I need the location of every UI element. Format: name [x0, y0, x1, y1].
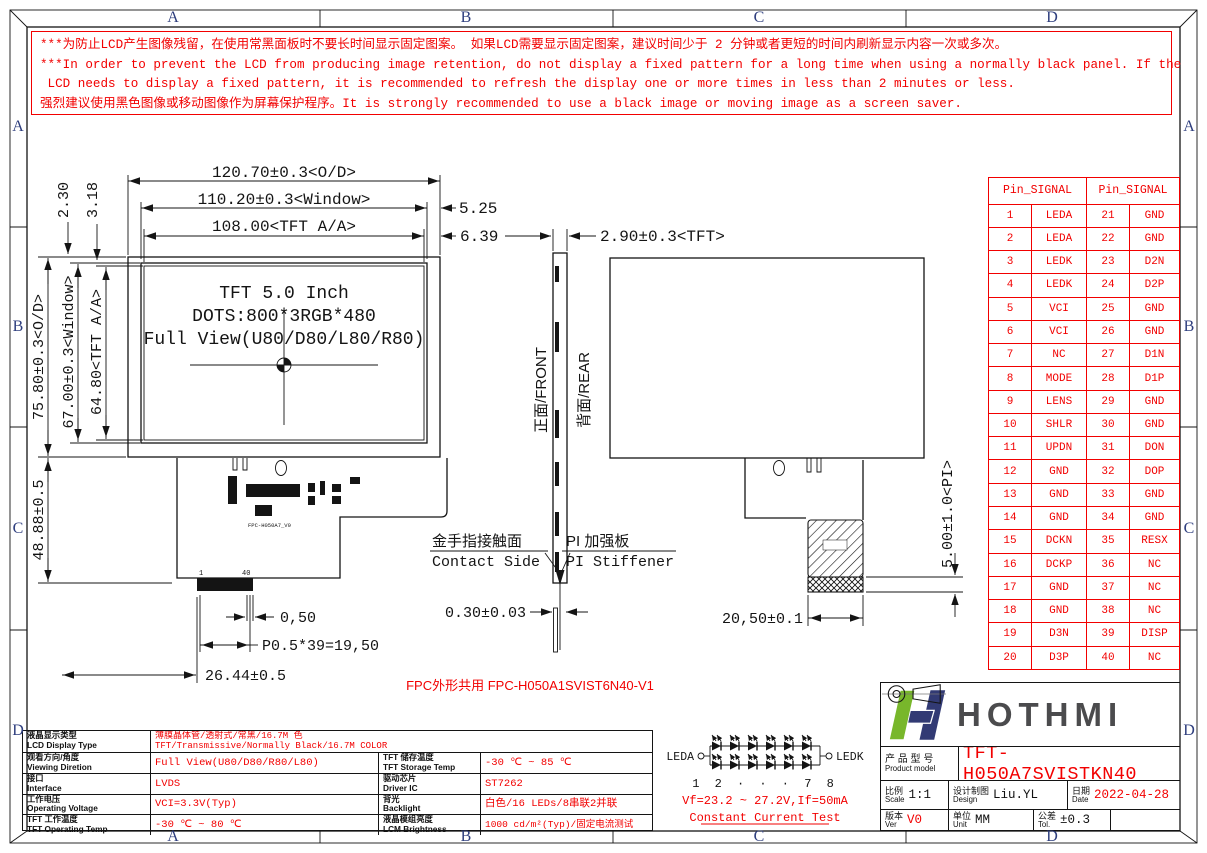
- pin-cell: 35: [1087, 530, 1130, 552]
- dim-aa-right: 6.39: [460, 228, 498, 246]
- pin-cell: 5: [989, 298, 1032, 320]
- pin-cell: SHLR: [1032, 414, 1087, 436]
- pin-cell: NC: [1130, 577, 1179, 599]
- stiffener-label-cn: PI 加强板: [566, 532, 629, 550]
- spec-value: TFT/Transmissive/Normally Black/16.7M CO…: [155, 741, 648, 751]
- fpc-part-label: FPC-H050A7_V0: [248, 522, 291, 529]
- dim-pi-height: 5.00±1.0<PI>: [940, 460, 957, 568]
- zone-letter: C: [1184, 520, 1195, 538]
- pin-table-row: 20D3P40NC: [989, 647, 1179, 669]
- zone-letter: B: [461, 828, 472, 846]
- pin-cell: DCKN: [1032, 530, 1087, 552]
- spec-label-en: Viewing Diretion: [27, 763, 146, 773]
- spec-label-en: TFT Storage Temp: [383, 763, 476, 773]
- pin-cell: D3N: [1032, 623, 1087, 645]
- zone-letter: B: [461, 9, 472, 27]
- warning-line: LCD needs to display a fixed pattern, it…: [40, 75, 1163, 95]
- spec-value: VCI=3.3V(Typ): [151, 795, 379, 815]
- pin-cell: 31: [1087, 437, 1130, 459]
- zone-letter: A: [167, 9, 179, 27]
- spec-label-en: Interface: [27, 784, 146, 794]
- pin-cell: LENS: [1032, 391, 1087, 413]
- unit-value: MM: [975, 813, 990, 827]
- pin-cell: 30: [1087, 414, 1130, 436]
- pin-cell: D3P: [1032, 647, 1087, 669]
- ver-label-en: Ver: [885, 821, 903, 830]
- version-value: V0: [907, 813, 922, 827]
- gold-finger-connector: [197, 578, 253, 591]
- pin-cell: 3: [989, 251, 1032, 273]
- pin-cell: 14: [989, 507, 1032, 529]
- side-front-label: 正面/FRONT: [533, 347, 550, 433]
- dim-pitch-total: P0.5*39=19,50: [262, 638, 379, 655]
- pin-cell: 32: [1087, 460, 1130, 482]
- dim-stiffener-width: 20,50±0.1: [722, 611, 803, 628]
- pin-cell: DCKP: [1032, 554, 1087, 576]
- pin-table-row: 10SHLR30GND: [989, 414, 1179, 437]
- spec-value: Full View(U80/D80/R80/L80): [151, 753, 379, 773]
- pin-table-row: 6VCI26GND: [989, 321, 1179, 344]
- pin-table-row: 19D3N39DISP: [989, 623, 1179, 646]
- pin-cell: GND: [1130, 321, 1179, 343]
- pin-cell: LEDA: [1032, 228, 1087, 250]
- pin-40-label: 40: [242, 570, 250, 578]
- zone-letter: A: [167, 828, 179, 846]
- spec-value: -30 ℃ ~ 80 ℃: [151, 815, 379, 835]
- title-block: HOTHMI 产 品 型 号 Product model TFT-H050A7S…: [880, 682, 1180, 831]
- scale-label-en: Scale: [885, 796, 905, 805]
- dim-od-width: 120.70±0.3<O/D>: [212, 164, 356, 182]
- pin-cell: 27: [1087, 344, 1130, 366]
- pin-cell: 15: [989, 530, 1032, 552]
- pin-header-cell: Pin_SIGNAL: [989, 178, 1087, 204]
- pin-table-row: 2LEDA22GND: [989, 228, 1179, 251]
- spec-label-en: Driver IC: [383, 784, 476, 794]
- pin-cell: GND: [1130, 414, 1179, 436]
- zone-letter: D: [12, 722, 24, 740]
- scale-value: 1:1: [909, 788, 932, 802]
- gold-finger-rear: [808, 577, 863, 592]
- pin-cell: 18: [989, 600, 1032, 622]
- pin-table-row: 7NC27D1N: [989, 344, 1179, 367]
- pin-cell: 19: [989, 623, 1032, 645]
- pin-table-row: 9LENS29GND: [989, 391, 1179, 414]
- dim-window-width: 110.20±0.3<Window>: [198, 191, 371, 209]
- pin-cell: LEDK: [1032, 251, 1087, 273]
- led-spec-label: Vf=23.2 ~ 27.2V,If=50mA: [682, 794, 848, 808]
- spec-row: 液晶显示类型 LCD Display Type 薄膜晶体管/透射式/常黑/16.…: [23, 731, 652, 753]
- date-label-en: Date: [1072, 796, 1090, 805]
- dim-window-height: 67.00±0.3<Window>: [61, 275, 78, 428]
- spec-value: ST7262: [481, 774, 652, 794]
- dim-window-right: 5.25: [459, 200, 497, 218]
- pin-table-row: 4LEDK24D2P: [989, 274, 1179, 297]
- designer-name: Liu.YL: [993, 788, 1038, 802]
- unit-label-en: Unit: [953, 821, 971, 830]
- pin-cell: NC: [1130, 647, 1179, 669]
- pin-cell: GND: [1032, 600, 1087, 622]
- dim-aa-width: 108.00<TFT A/A>: [212, 218, 356, 236]
- stiffener-label-en: PI Stiffener: [566, 554, 674, 571]
- zone-letter: C: [754, 828, 765, 846]
- pin-cell: DON: [1130, 437, 1179, 459]
- dim-fpc-drop: 48.88±0.5: [31, 479, 48, 560]
- pin-cell: 13: [989, 484, 1032, 506]
- brand-name: HOTHMI: [957, 696, 1123, 734]
- spec-label-en: TFT Operating Temp: [27, 825, 146, 835]
- dim-offset-window: 2.30: [56, 182, 73, 218]
- spec-label-en: Backlight: [383, 804, 476, 814]
- pin-cell: DISP: [1130, 623, 1179, 645]
- panel-size-label: TFT 5.0 Inch: [219, 284, 349, 304]
- zone-letter: B: [1184, 318, 1195, 336]
- pin-table-row: 11UPDN31DON: [989, 437, 1179, 460]
- pin-cell: GND: [1130, 484, 1179, 506]
- dim-offset-aa: 3.18: [85, 182, 102, 218]
- dim-fpc-thickness: 0.30±0.03: [445, 605, 526, 622]
- pin-cell: 9: [989, 391, 1032, 413]
- pin-cell: MODE: [1032, 367, 1087, 389]
- dim-fpc-width: 26.44±0.5: [205, 668, 286, 685]
- pin-cell: 10: [989, 414, 1032, 436]
- pin-cell: NC: [1130, 600, 1179, 622]
- pin-cell: 24: [1087, 274, 1130, 296]
- pin-cell: 6: [989, 321, 1032, 343]
- spec-value: 白色/16 LEDs/8串联2并联: [481, 795, 652, 815]
- led-circuit: LEDA LEDK 1 2 · · · 7 8 Vf=23.2 ~ 27.2V,…: [666, 735, 863, 825]
- rear-view: 20,50±0.1 5.00±1.0<PI>: [610, 258, 963, 628]
- pin-table-row: 15DCKN35RESX: [989, 530, 1179, 553]
- dim-od-height: 75.80±0.3<O/D>: [31, 294, 48, 420]
- dim-pin-pitch: 0,50: [280, 610, 316, 627]
- pin-cell: 22: [1087, 228, 1130, 250]
- dim-aa-height: 64.80<TFT A/A>: [89, 289, 106, 415]
- led-index-label: 1 2 · · · 7 8: [692, 777, 838, 791]
- spec-label-en: LCD Display Type: [27, 741, 146, 751]
- pin-cell: 4: [989, 274, 1032, 296]
- pin-1-label: 1: [199, 570, 203, 578]
- pin-cell: 17: [989, 577, 1032, 599]
- pin-cell: GND: [1032, 460, 1087, 482]
- contact-label-en: Contact Side: [432, 554, 540, 571]
- pin-cell: 37: [1087, 577, 1130, 599]
- pin-cell: 21: [1087, 205, 1130, 227]
- pin-cell: RESX: [1130, 530, 1179, 552]
- spec-value: LVDS: [151, 774, 379, 794]
- scale-row: 比例 Scale 1:1 设计制图 Design Liu.YL 日期 Date …: [881, 780, 1180, 809]
- pin-table-row: 13GND33GND: [989, 484, 1179, 507]
- product-model: TFT-H050A7SVISTKN40: [963, 747, 1180, 780]
- pin-cell: 33: [1087, 484, 1130, 506]
- drawing-sheet: TFT 5.0 Inch DOTS:800*3RGB*480 Full View…: [0, 0, 1207, 853]
- pin-cell: GND: [1130, 228, 1179, 250]
- design-label-en: Design: [953, 796, 989, 805]
- fpc-note: FPC外形共用 FPC-H050A1SVIST6N40-V1: [406, 678, 654, 693]
- pin-cell: 25: [1087, 298, 1130, 320]
- pin-table-row: 17GND37NC: [989, 577, 1179, 600]
- date-value: 2022-04-28: [1094, 788, 1169, 802]
- pin-cell: VCI: [1032, 321, 1087, 343]
- pin-cell: 38: [1087, 600, 1130, 622]
- pin-cell: 26: [1087, 321, 1130, 343]
- pin-cell: 23: [1087, 251, 1130, 273]
- pin-table-body: 1LEDA21GND2LEDA22GND3LEDK23D2N4LEDK24D2P…: [989, 205, 1179, 669]
- pin-cell: UPDN: [1032, 437, 1087, 459]
- pin-cell: 2: [989, 228, 1032, 250]
- pin-cell: NC: [1130, 554, 1179, 576]
- warning-line: ***为防止LCD产生图像残留，在使用常黑面板时不要长时间显示固定图案。 如果L…: [40, 36, 1163, 56]
- pin-table: Pin_SIGNAL Pin_SIGNAL 1LEDA21GND2LEDA22G…: [988, 177, 1180, 670]
- fpc-front: FPC-H050A7_V0 1 40: [177, 458, 447, 591]
- pin-cell: 39: [1087, 623, 1130, 645]
- pin-cell: D1N: [1130, 344, 1179, 366]
- pin-cell: GND: [1130, 205, 1179, 227]
- pin-cell: D1P: [1130, 367, 1179, 389]
- spec-value: -30 ℃ ~ 85 ℃: [481, 753, 652, 773]
- zone-letter: D: [1046, 9, 1058, 27]
- zone-letter: A: [12, 118, 24, 136]
- pin-cell: DOP: [1130, 460, 1179, 482]
- pin-cell: LEDA: [1032, 205, 1087, 227]
- pin-cell: GND: [1130, 507, 1179, 529]
- pin-cell: GND: [1130, 298, 1179, 320]
- pin-cell: 11: [989, 437, 1032, 459]
- pin-cell: VCI: [1032, 298, 1087, 320]
- zone-letter: B: [13, 318, 24, 336]
- led-test-label: Constant Current Test: [689, 811, 840, 825]
- dim-tft-thickness: 2.90±0.3<TFT>: [600, 228, 725, 246]
- pin-cell: LEDK: [1032, 274, 1087, 296]
- pin-table-header: Pin_SIGNAL Pin_SIGNAL: [989, 178, 1179, 205]
- pin-table-row: 18GND38NC: [989, 600, 1179, 623]
- zone-letter: D: [1046, 828, 1058, 846]
- zone-letter: C: [754, 9, 765, 27]
- pin-cell: 7: [989, 344, 1032, 366]
- dims-left: 75.80±0.3<O/D> 67.00±0.3<Window> 64.80<T…: [31, 257, 172, 583]
- pin-cell: 29: [1087, 391, 1130, 413]
- spec-value: 薄膜晶体管/透射式/常黑/16.7M 色: [155, 731, 648, 741]
- pin-table-row: 14GND34GND: [989, 507, 1179, 530]
- dims-bottom: 0,50 P0.5*39=19,50 26.44±0.5: [62, 595, 379, 685]
- side-rear-label: 背面/REAR: [576, 352, 593, 428]
- pin-cell: 20: [989, 647, 1032, 669]
- pin-cell: D2N: [1130, 251, 1179, 273]
- pin-cell: 40: [1087, 647, 1130, 669]
- spec-row: 接口 Interface LVDS 驱动芯片 Driver IC ST7262: [23, 774, 652, 795]
- pin-cell: GND: [1032, 577, 1087, 599]
- pin-table-row: 5VCI25GND: [989, 298, 1179, 321]
- led-cathode-label: LEDK: [836, 751, 864, 764]
- spec-row: 观看方向/角度 Viewing Diretion Full View(U80/D…: [23, 753, 652, 774]
- led-anode-label: LEDA: [666, 751, 694, 764]
- warning-box: ***为防止LCD产生图像残留，在使用常黑面板时不要长时间显示固定图案。 如果L…: [31, 31, 1172, 115]
- model-row: 产 品 型 号 Product model TFT-H050A7SVISTKN4…: [881, 746, 1180, 780]
- pin-cell: GND: [1032, 507, 1087, 529]
- pin-cell: 12: [989, 460, 1032, 482]
- warning-line: 强烈建议使用黑色图像或移动图像作为屏幕保护程序。It is strongly r…: [40, 95, 1163, 115]
- pin-cell: D2P: [1130, 274, 1179, 296]
- version-row: 版本 Ver V0 单位 Unit MM 公差 Tol. ±0.3: [881, 809, 1180, 830]
- zone-letter: C: [13, 520, 24, 538]
- pin-table-row: 16DCKP36NC: [989, 554, 1179, 577]
- pin-header-cell: Pin_SIGNAL: [1087, 178, 1179, 204]
- pin-table-row: 3LEDK23D2N: [989, 251, 1179, 274]
- pin-table-row: 1LEDA21GND: [989, 205, 1179, 228]
- pin-cell: 1: [989, 205, 1032, 227]
- pin-cell: 36: [1087, 554, 1130, 576]
- pin-cell: GND: [1130, 391, 1179, 413]
- pin-cell: 16: [989, 554, 1032, 576]
- spec-table: 液晶显示类型 LCD Display Type 薄膜晶体管/透射式/常黑/16.…: [22, 730, 653, 831]
- zone-letter: A: [1183, 118, 1195, 136]
- model-label-en: Product model: [885, 765, 935, 774]
- pin-cell: GND: [1032, 484, 1087, 506]
- fpc-components: [228, 476, 360, 516]
- pin-cell: 34: [1087, 507, 1130, 529]
- spec-row: TFT 工作温度 TFT Operating Temp -30 ℃ ~ 80 ℃…: [23, 815, 652, 835]
- contact-label-cn: 金手指接触面: [432, 533, 522, 550]
- pin-cell: 8: [989, 367, 1032, 389]
- spec-row: 工作电压 Operating Voltage VCI=3.3V(Typ) 背光 …: [23, 795, 652, 816]
- spec-label-en: Operating Voltage: [27, 804, 146, 814]
- spec-value: 1000 cd/m²(Typ)/固定电流测试: [481, 815, 652, 835]
- zone-letter: D: [1183, 722, 1195, 740]
- pin-table-row: 8MODE28D1P: [989, 367, 1179, 390]
- front-view: TFT 5.0 Inch DOTS:800*3RGB*480 Full View…: [128, 257, 440, 476]
- side-view: 正面/FRONT 背面/REAR 金手指接触面 Contact Side PI …: [430, 229, 676, 652]
- warning-line: ***In order to prevent the LCD from prod…: [40, 56, 1163, 76]
- pin-cell: 28: [1087, 367, 1130, 389]
- dims-top: 120.70±0.3<O/D> 110.20±0.3<Window> 5.25 …: [56, 164, 725, 262]
- pin-table-row: 12GND32DOP: [989, 460, 1179, 483]
- tolerance-value: ±0.3: [1060, 813, 1090, 827]
- pin-cell: NC: [1032, 344, 1087, 366]
